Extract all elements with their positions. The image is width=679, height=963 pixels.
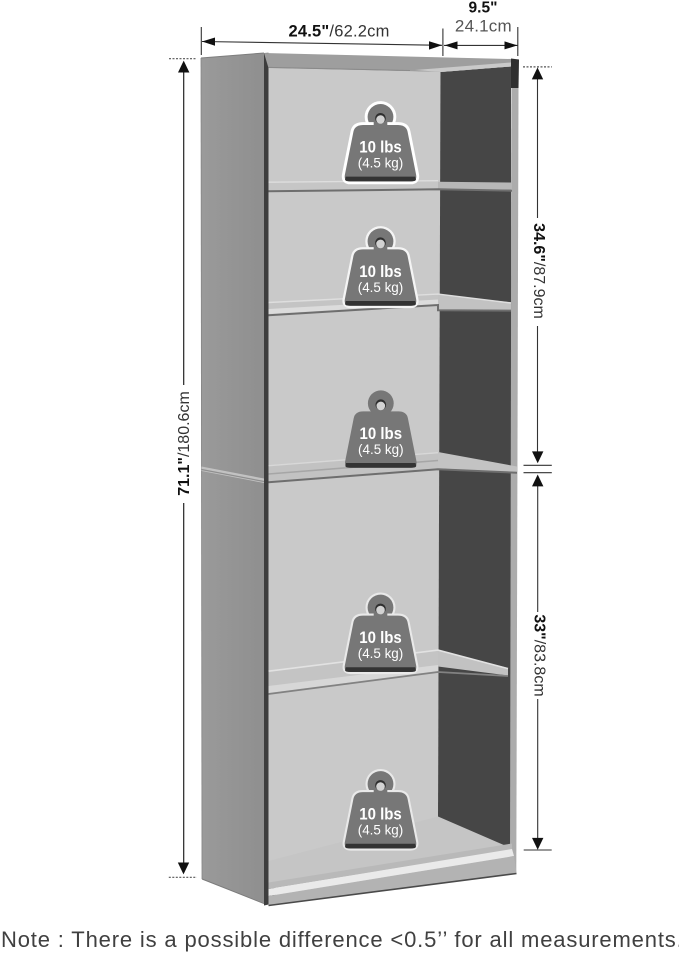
svg-text:34.6"/87.9cm: 34.6"/87.9cm: [530, 223, 547, 319]
svg-text:33"/83.8cm: 33"/83.8cm: [531, 614, 548, 696]
svg-text:Note : There is a possible dif: Note : There is a possible difference <0…: [1, 927, 679, 952]
svg-text:71.1"/180.6cm: 71.1"/180.6cm: [176, 391, 193, 496]
svg-text:9.5": 9.5": [469, 0, 498, 17]
svg-text:24.1cm: 24.1cm: [455, 17, 512, 36]
svg-text:24.5"/62.2cm: 24.5"/62.2cm: [288, 23, 389, 41]
